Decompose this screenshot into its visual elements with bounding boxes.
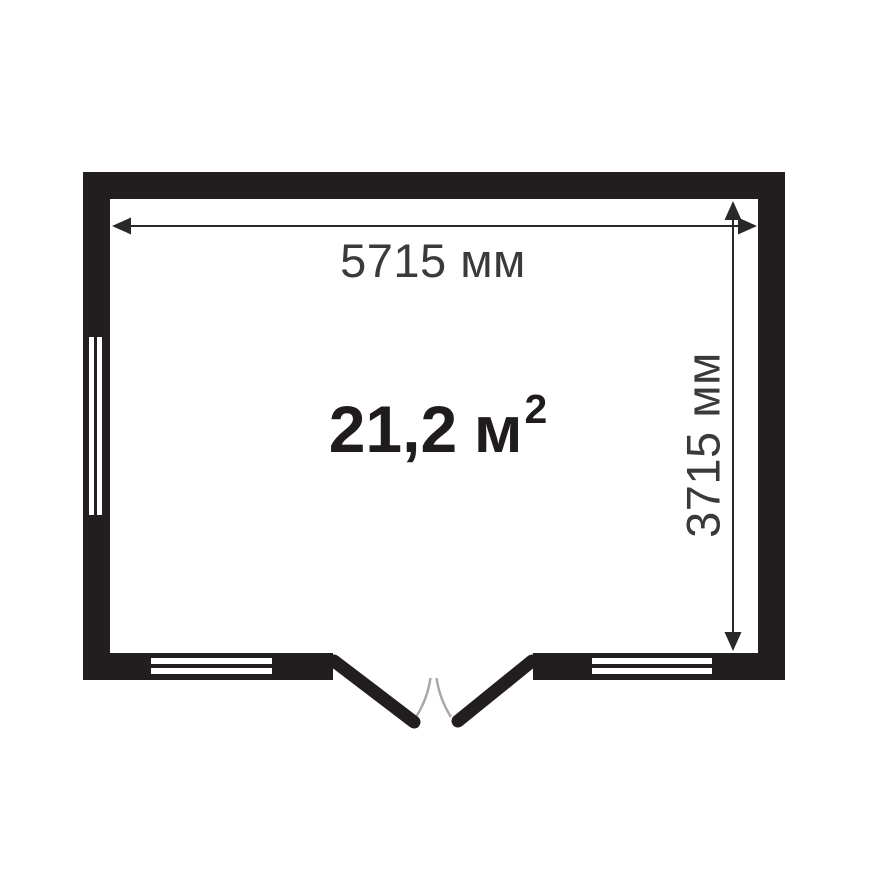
window-left-pane-inner bbox=[97, 337, 102, 515]
window-bottom-left-pane-outer bbox=[151, 658, 272, 664]
area-superscript: 2 bbox=[525, 386, 548, 432]
windows bbox=[89, 337, 712, 674]
wall-top bbox=[83, 172, 785, 199]
floor-plan: 5715 мм 3715 мм 21,2м2 bbox=[0, 0, 890, 890]
area-value: 21,2 bbox=[329, 392, 457, 466]
door-swing-arc-right bbox=[437, 678, 452, 717]
arrowhead-up-icon bbox=[725, 201, 742, 220]
area-label: 21,2м2 bbox=[329, 396, 548, 462]
wall-left bbox=[83, 172, 110, 680]
window-bottom-right-pane-inner bbox=[592, 668, 712, 674]
window-bottom-right-pane-outer bbox=[592, 658, 712, 664]
door-swing-arc-left bbox=[416, 678, 431, 717]
wall-bottom-right bbox=[533, 653, 785, 680]
door-leaves bbox=[334, 661, 532, 722]
door-swing-arcs bbox=[416, 678, 451, 717]
wall-bottom-left bbox=[83, 653, 333, 680]
width-dimension-label: 5715 мм bbox=[340, 237, 526, 284]
arrowhead-right-icon bbox=[738, 218, 757, 235]
arrowhead-down-icon bbox=[725, 632, 742, 651]
arrowhead-left-icon bbox=[112, 218, 131, 235]
wall-right bbox=[758, 172, 785, 680]
door-leaf-right bbox=[458, 661, 532, 721]
height-dimension-label: 3715 мм bbox=[680, 352, 727, 538]
area-unit: м bbox=[474, 392, 523, 466]
window-left-pane-outer bbox=[89, 337, 94, 515]
door-leaf-left bbox=[334, 661, 414, 722]
window-bottom-left-pane-inner bbox=[151, 668, 272, 674]
